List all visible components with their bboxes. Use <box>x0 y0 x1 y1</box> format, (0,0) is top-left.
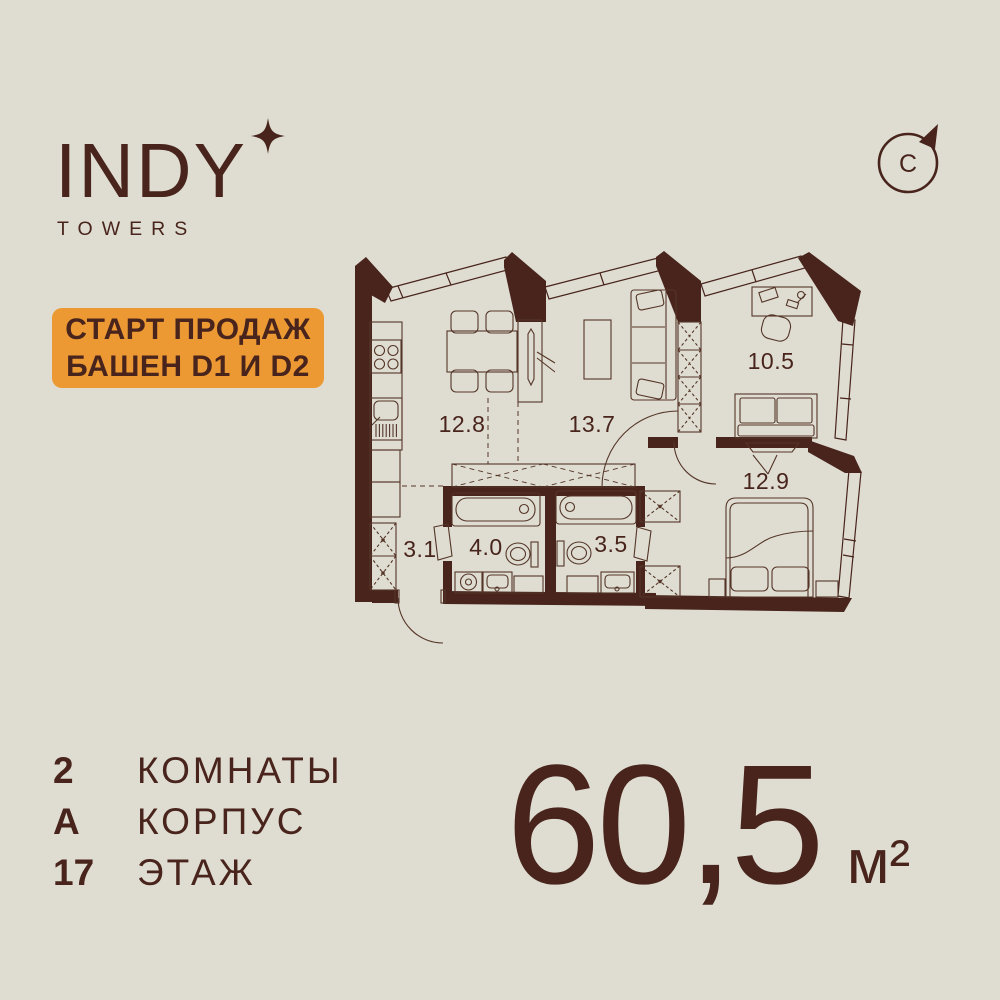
bedroom-door-arc <box>674 442 716 484</box>
bathtub-2-icon <box>556 491 636 524</box>
bathroom2-door-leaf <box>634 527 651 561</box>
console-table <box>584 320 611 379</box>
bath-cabinet-2 <box>567 576 598 593</box>
compass-letter: С <box>899 150 917 178</box>
logo-wordmark: INDY <box>55 128 247 214</box>
compass-icon: С <box>879 124 938 192</box>
washing-machine-icon <box>455 572 482 593</box>
kitchen-sink-icon <box>370 398 402 440</box>
floor-plan: INDY TOWERS С <box>0 0 1000 1000</box>
desk-chair-icon <box>760 313 793 343</box>
storage-cabinet <box>452 464 635 487</box>
nightstand-left <box>709 579 725 597</box>
room-area-office: 10.5 <box>748 348 795 374</box>
sliding-door <box>518 320 555 402</box>
toilet-2-icon <box>557 541 591 566</box>
entry-door-arc <box>398 598 443 643</box>
desk-icon <box>752 287 812 316</box>
toilet-1-icon <box>506 542 538 567</box>
logo-sub: TOWERS <box>57 218 196 240</box>
room-area-bathroom1: 4.0 <box>469 534 502 560</box>
room-area-hallway: 3.1 <box>403 536 436 562</box>
hall-wardrobe <box>370 523 396 590</box>
dining-table <box>447 311 517 392</box>
room-area-bedroom: 12.9 <box>743 468 790 494</box>
sparkle-icon <box>251 118 285 154</box>
logo: INDY TOWERS <box>55 118 285 240</box>
loveseat-icon <box>735 394 817 438</box>
room-area-living: 13.7 <box>569 411 616 437</box>
bath-sink-2-icon <box>601 572 634 593</box>
room-area-kitchen: 12.8 <box>439 411 486 437</box>
stove-icon <box>371 340 401 373</box>
wardrobe-column <box>678 322 701 432</box>
bath-cabinet-1 <box>514 576 543 593</box>
sofa-icon <box>631 289 676 400</box>
poster: { "header": { "logo": "INDY", "logo_sub"… <box>0 0 1000 1000</box>
nightstand-right <box>816 581 838 597</box>
bathtub-1-icon <box>452 493 540 526</box>
room-labels: 12.8 13.7 10.5 12.9 3.1 4.0 3.5 <box>403 348 794 562</box>
bedroom-wardrobes <box>640 491 680 597</box>
room-area-bathroom2: 3.5 <box>594 531 627 557</box>
bath-sink-1-icon <box>483 572 512 593</box>
bed-icon <box>726 498 813 597</box>
